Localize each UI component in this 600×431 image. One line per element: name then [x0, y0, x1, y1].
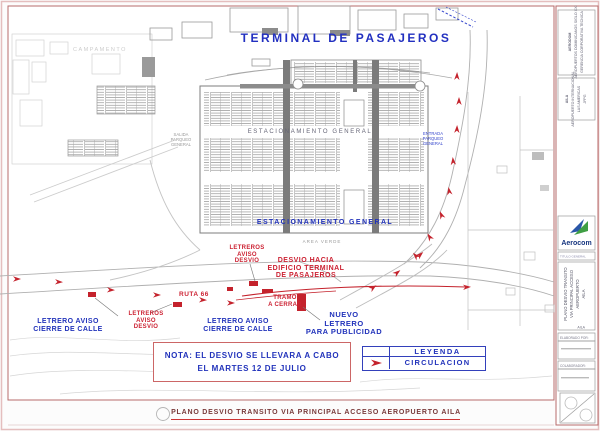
- parking-lot: [200, 60, 428, 233]
- svg-text:JFPG: JFPG: [583, 94, 587, 103]
- sidebar-field-label-0: ELABORADO POR:: [560, 336, 589, 340]
- parking-label-top: ESTACIONAMIENTO GENERAL: [248, 129, 373, 135]
- red-arrow-icon: [368, 359, 384, 367]
- letreros-aviso-desvio-left-label: LETREROS AVISO DESVIO: [124, 311, 168, 331]
- svg-text:AERODOM: AERODOM: [568, 33, 572, 52]
- letrero-cierre-center-label: LETRERO AVISO CIERRE DE CALLE: [196, 318, 280, 333]
- svg-text:AEROPUERTO INTERNACIONAL: AEROPUERTO INTERNACIONAL: [571, 71, 575, 126]
- note-line-2: EL MARTES 12 DE JULIO: [154, 362, 350, 375]
- area-verde-label: AREA VERDE: [303, 239, 342, 244]
- legend-empty-cell: [363, 347, 389, 357]
- legend-symbol-cell: [363, 357, 389, 369]
- desvio-hacia-label: DESVIO HACIA EDIFICIO TERMINAL DE PASAJE…: [256, 257, 356, 280]
- note-box: NOTA: EL DESVIO SE LLEVARA A CABO EL MAR…: [153, 342, 351, 382]
- terminal-title: TERMINAL DE PASAJEROS: [236, 31, 456, 45]
- legend-title: LEYENDA: [389, 347, 485, 357]
- legend-item-label: CIRCULACION: [389, 357, 485, 369]
- svg-text:LAS AMERICAS: LAS AMERICAS: [577, 85, 581, 112]
- sidebar-field-value-line: [561, 377, 589, 378]
- svg-text:GENERAL: GENERAL: [423, 141, 444, 146]
- entrada-parqueo-label: ENTRADA PARQUEO GENERAL: [423, 131, 444, 146]
- svg-text:PLANO DESVIO TRANSITO: PLANO DESVIO TRANSITO: [563, 267, 568, 321]
- sidebar-field-label-1: COLABORADOR:: [560, 364, 586, 368]
- sheet-title: PLANO DESVIO TRANSITO VIA PRINCIPAL ACCE…: [170, 409, 462, 416]
- nuevo-letrero-label: NUEVO LETRERO PARA PUBLICIDAD: [294, 311, 394, 337]
- letrero-cierre-left-label: LETRERO AVISO CIERRE DE CALLE: [26, 318, 110, 333]
- note-line-1: NOTA: EL DESVIO SE LLEVARA A CABO: [154, 349, 350, 362]
- svg-text:AILA: AILA: [565, 94, 569, 103]
- aerocom-brand: Aerocom: [561, 240, 591, 247]
- svg-text:VIA PRINCIPAL ACCESO: VIA PRINCIPAL ACCESO: [569, 269, 574, 318]
- svg-text:GERENCIA CORPORATIVA TECNICA: GERENCIA CORPORATIVA TECNICA: [580, 11, 584, 73]
- ruta-66-label: RUTA 66: [179, 291, 219, 299]
- svg-text:AILA: AILA: [581, 289, 586, 298]
- svg-text:AEROPUERTO: AEROPUERTO: [575, 279, 580, 309]
- svg-text:AEROPUERTOS DOMINICANOS SIGLO: AEROPUERTOS DOMINICANOS SIGLO XXI: [574, 6, 578, 79]
- sidebar-title-code: AILA: [577, 326, 585, 330]
- svg-text:GENERAL: GENERAL: [171, 142, 192, 147]
- sidebar-band-label: TITULO GENERAL: [560, 255, 586, 259]
- tramo-a-cerrar-label: TRAMO A CERRAR: [263, 295, 307, 308]
- parking-label-bottom: ESTACIONAMIENTO GENERAL: [257, 219, 393, 226]
- legend-box: LEYENDA CIRCULACION: [362, 346, 486, 371]
- campamento-label: CAMPAMENTO: [73, 47, 127, 53]
- sidebar-field-value-line: [561, 348, 591, 349]
